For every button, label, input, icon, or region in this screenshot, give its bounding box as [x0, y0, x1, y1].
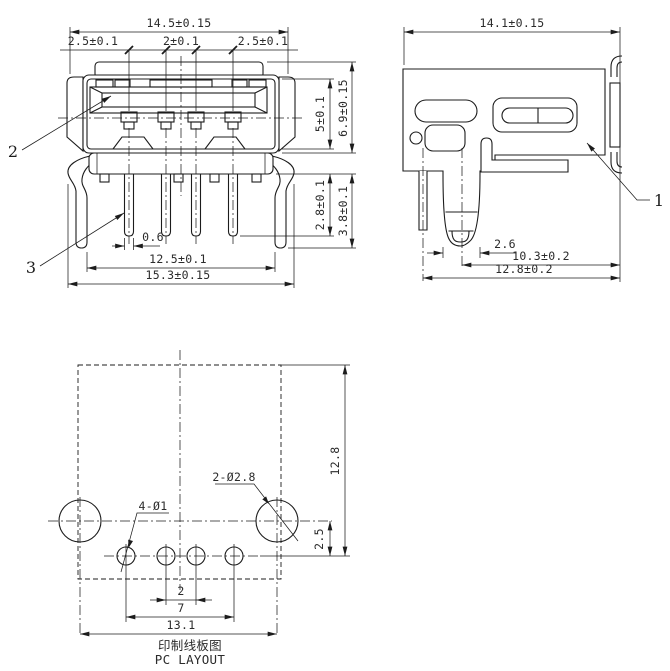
dim-overall-width-text: 14.5±0.15	[146, 16, 211, 30]
front-view: 14.5±0.15 2.5±0.1 2±0.1 2.5±0.1 5±0.1 6.…	[8, 16, 356, 288]
balloon-shell-text: 2	[8, 142, 18, 161]
engineering-drawing-page: 14.5±0.15 2.5±0.1 2±0.1 2.5±0.1 5±0.1 6.…	[0, 0, 670, 671]
dim-pin-span: 7	[126, 601, 234, 617]
usb-connector-drawing: 14.5±0.15 2.5±0.1 2±0.1 2.5±0.1 5±0.1 6.…	[0, 0, 670, 671]
dim-board-depth-text: 12.8	[328, 447, 342, 476]
dim-hole-row-offset-text: 2.5	[312, 528, 326, 550]
dim-pin-pitch-text: 2	[177, 584, 184, 598]
pc-layout-view: 2-Ø2.8 4-Ø1 2 7 13.1 12.8	[48, 350, 350, 667]
dim-overall-depth-text: 14.1±0.15	[479, 16, 544, 30]
callout-big-holes-text: 2-Ø2.8	[212, 470, 255, 484]
dim-pin-pitch: 2	[150, 584, 212, 600]
dim-leg-to-face-text: 10.3±0.2	[512, 249, 570, 263]
side-face-plate	[610, 83, 620, 147]
dim-pin-lengths: 2.8±0.1 3.8±0.1	[240, 174, 356, 248]
pcb-caption-english: PC LAYOUT	[155, 652, 226, 667]
balloon-pin-text: 3	[26, 258, 36, 277]
pcb-caption-chinese: 印制线板图	[158, 638, 222, 653]
dim-contact-pitches: 2.5±0.1 2±0.1 2.5±0.1	[60, 34, 298, 54]
dim-pin-to-face: 12.8±0.2	[423, 262, 620, 278]
dim-shell-height-text: 5±0.1	[313, 96, 327, 132]
dim-pin-span-text: 7	[177, 601, 184, 615]
balloon-pin: 3	[26, 213, 124, 277]
dim-hole-row-offset: 2.5	[312, 521, 330, 556]
front-left-ear	[67, 77, 83, 151]
dim-board-depth: 12.8	[260, 365, 350, 556]
dim-pin-outer-text: 3.8±0.1	[336, 186, 350, 237]
dim-pitch-left-text: 2.5±0.1	[68, 34, 119, 48]
balloon-body-text: 1	[654, 191, 664, 210]
side-body	[403, 69, 605, 246]
dim-pin-inner-text: 2.8±0.1	[313, 180, 327, 231]
dim-pin-width-text: 0.6	[142, 230, 164, 244]
front-right-ear	[279, 77, 295, 151]
dim-big-hole-span: 13.1	[80, 618, 277, 634]
dim-pitch-center-text: 2±0.1	[163, 34, 199, 48]
dim-pitch-right-text: 2.5±0.1	[238, 34, 289, 48]
dim-bottom-width-text: 15.3±0.15	[145, 268, 210, 282]
pcb-centerlines	[48, 350, 332, 634]
dim-leg-span-text: 12.5±0.1	[149, 252, 207, 266]
callout-small-holes: 4-Ø1	[121, 499, 169, 572]
dim-overall-height-text: 6.9±0.15	[336, 79, 350, 137]
dim-pin-to-face-text: 12.8±0.2	[495, 262, 553, 276]
dim-pin-width: 0.6	[112, 230, 164, 250]
dim-big-hole-span-text: 13.1	[167, 618, 196, 632]
callout-big-holes: 2-Ø2.8	[212, 470, 298, 541]
side-view: 14.1±0.15 2.6 10.3±0.2 12.8±0.2 1	[403, 16, 664, 282]
callout-small-holes-text: 4-Ø1	[139, 499, 168, 513]
